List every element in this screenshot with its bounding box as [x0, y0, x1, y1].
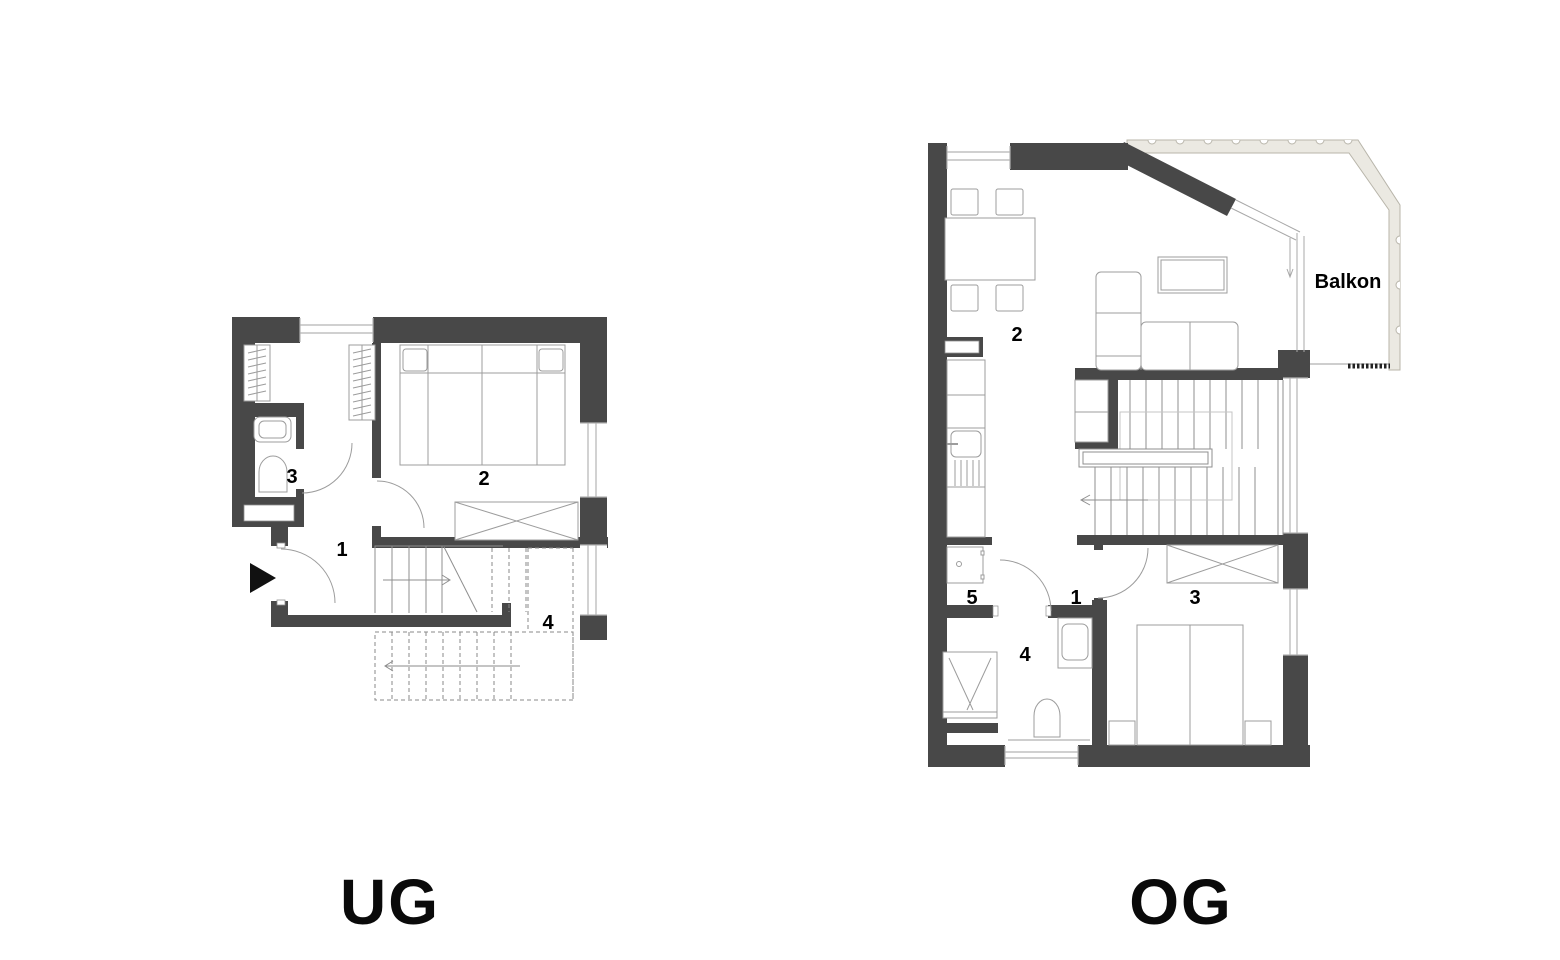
floorplan-drawing: 1 2 3 4 Balkon — [0, 0, 1560, 960]
ug-stairs-down-arrow — [385, 661, 520, 671]
ug-bathroom-door-arc — [302, 443, 352, 493]
ug-floorplan: 1 2 3 4 — [232, 317, 608, 700]
ug-stairs-up-arrow — [383, 575, 450, 585]
og-bedroom-door-arc — [1098, 548, 1148, 598]
og-bathroom-fixtures — [943, 618, 1092, 740]
ug-closet-middle — [349, 345, 375, 420]
og-bathroom-door-arc — [1000, 560, 1051, 611]
ug-window-top — [300, 317, 373, 343]
og-double-bed — [1109, 625, 1271, 745]
og-jamb-tick-right — [1046, 606, 1051, 616]
ug-room-label-1: 1 — [336, 539, 347, 561]
og-sink — [1062, 624, 1088, 660]
og-nightstand-right — [1245, 721, 1271, 745]
ug-toilet — [259, 456, 287, 492]
og-shower — [943, 652, 997, 718]
og-nightstand-left — [1109, 721, 1135, 745]
og-dining-table — [945, 218, 1035, 280]
og-window-right-stairs — [1283, 378, 1308, 533]
og-chair — [951, 285, 978, 311]
og-wardrobe — [1167, 545, 1278, 583]
og-washing-machine — [947, 547, 984, 583]
ug-bathroom-fixtures — [254, 417, 291, 492]
floorplan-page: 1 2 3 4 Balkon — [0, 0, 1560, 960]
ug-entrance-jamb-tick-bottom — [277, 600, 285, 605]
ug-entrance-arrow — [250, 563, 276, 593]
ug-entrance-jamb-tick-top — [277, 543, 285, 548]
ug-stairs-solid-flight — [375, 546, 503, 613]
ug-bedroom-door-arc — [377, 481, 424, 528]
og-chair — [996, 285, 1023, 311]
og-kitchen — [947, 360, 985, 537]
og-chair — [996, 189, 1023, 215]
og-room-label-3: 3 — [1189, 587, 1200, 609]
og-window-bathroom-bottom — [1005, 745, 1078, 765]
ug-window-right-bedroom — [580, 423, 607, 497]
ug-bed-pillow-right — [539, 349, 563, 371]
og-sliding-door-arrow — [1287, 238, 1293, 277]
og-room-label-1: 1 — [1070, 587, 1081, 609]
og-dining-set — [945, 189, 1035, 311]
og-stairs-handrail — [1079, 449, 1212, 467]
ug-closet-left — [244, 345, 270, 401]
og-stairs-arrow — [1081, 495, 1148, 505]
og-window-right-bedroom — [1283, 589, 1308, 655]
og-room-label-4: 4 — [1019, 644, 1031, 666]
ug-room-label-3: 3 — [286, 466, 297, 488]
ug-room-label-2: 2 — [478, 468, 489, 490]
ug-bed-pillow-left — [403, 349, 427, 371]
ug-wall-niche — [244, 505, 294, 521]
og-window-kitchen-top — [947, 145, 1010, 170]
og-toilet — [1034, 699, 1060, 737]
og-floorplan: Balkon — [928, 140, 1400, 767]
og-room-label-2: 2 — [1011, 324, 1022, 346]
og-jamb-tick-left — [993, 606, 998, 616]
og-room-label-5: 5 — [966, 587, 977, 609]
ug-room-label-4: 4 — [542, 612, 554, 634]
ug-floor-label: UG — [340, 866, 440, 938]
ug-wardrobe — [455, 502, 578, 540]
og-balcony-label: Balkon — [1315, 271, 1382, 293]
og-coffee-table — [1158, 257, 1227, 293]
ug-window-right-stairs — [580, 545, 607, 615]
og-stairs — [1075, 380, 1283, 535]
og-floor-label: OG — [1129, 866, 1233, 938]
og-duct-niche — [945, 341, 979, 353]
og-chair — [951, 189, 978, 215]
ug-entrance-door-arc — [281, 549, 335, 603]
og-stairs-cupboard — [1075, 380, 1108, 442]
ug-double-bed — [400, 345, 565, 465]
og-balcony-glazing — [1231, 200, 1304, 352]
